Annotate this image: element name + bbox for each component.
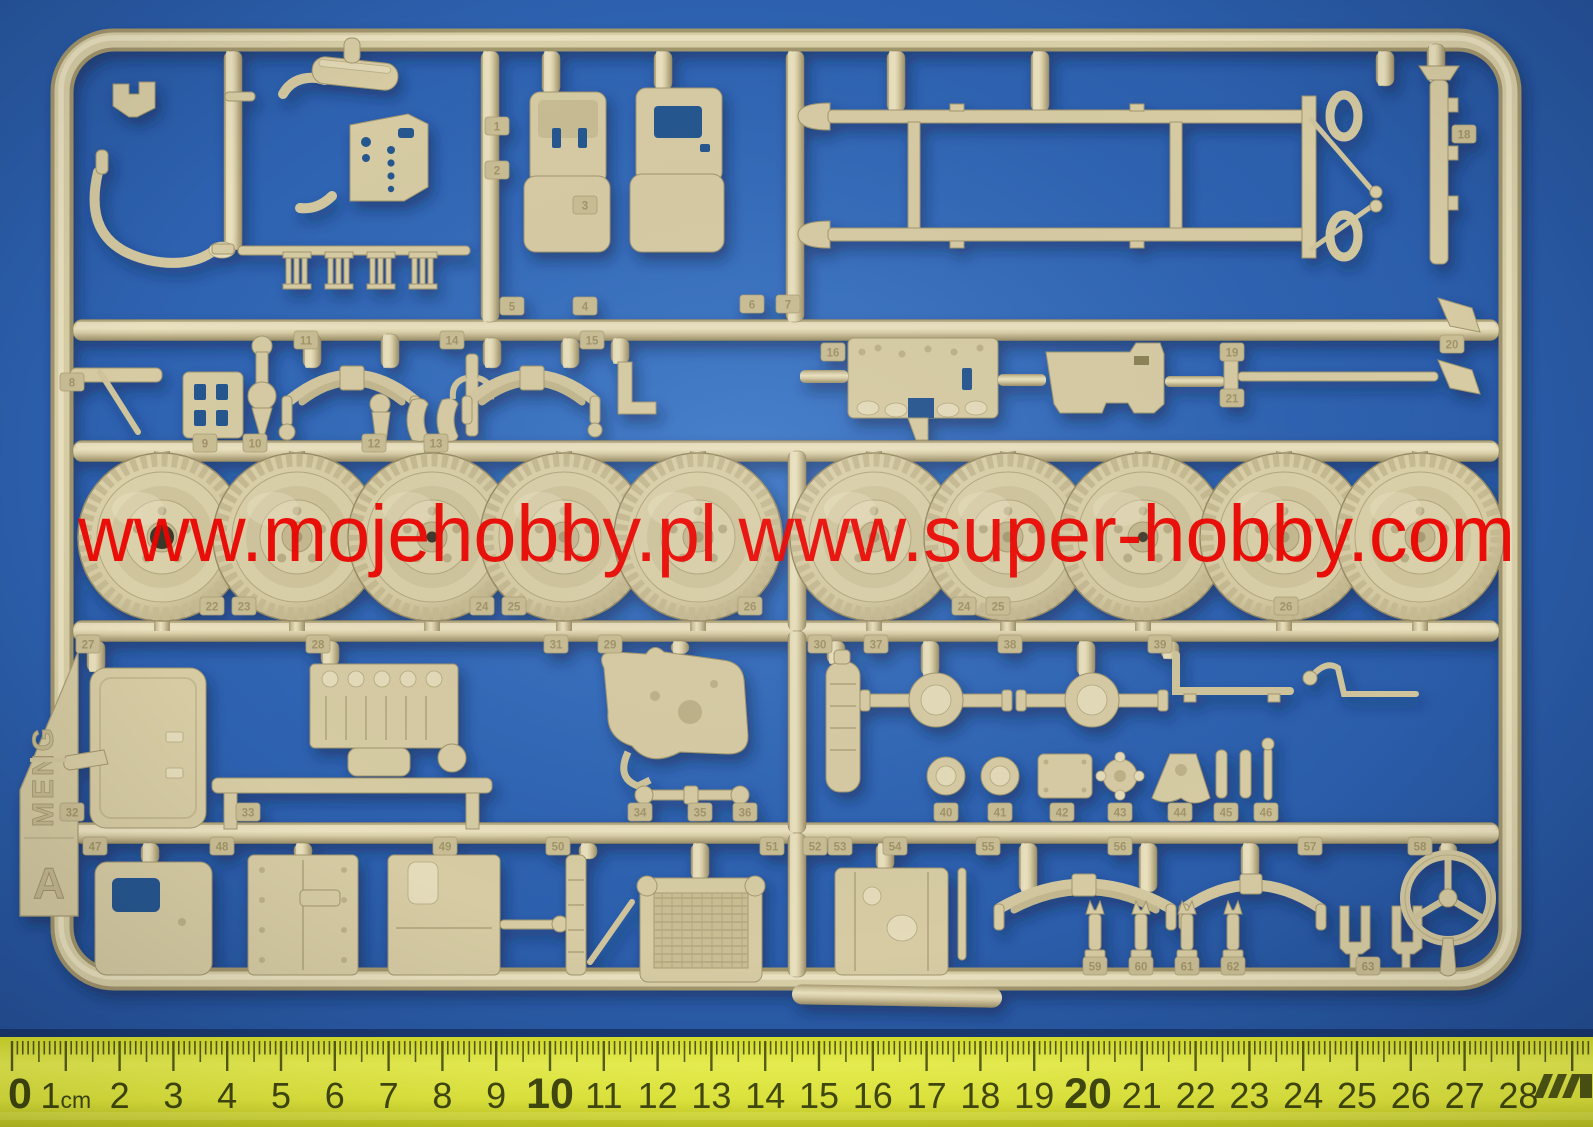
- vignette-overlay: [0, 0, 1593, 1127]
- photo-canvas: MENG A: [0, 0, 1593, 1127]
- sprue-photo: MENG A: [0, 0, 1593, 1127]
